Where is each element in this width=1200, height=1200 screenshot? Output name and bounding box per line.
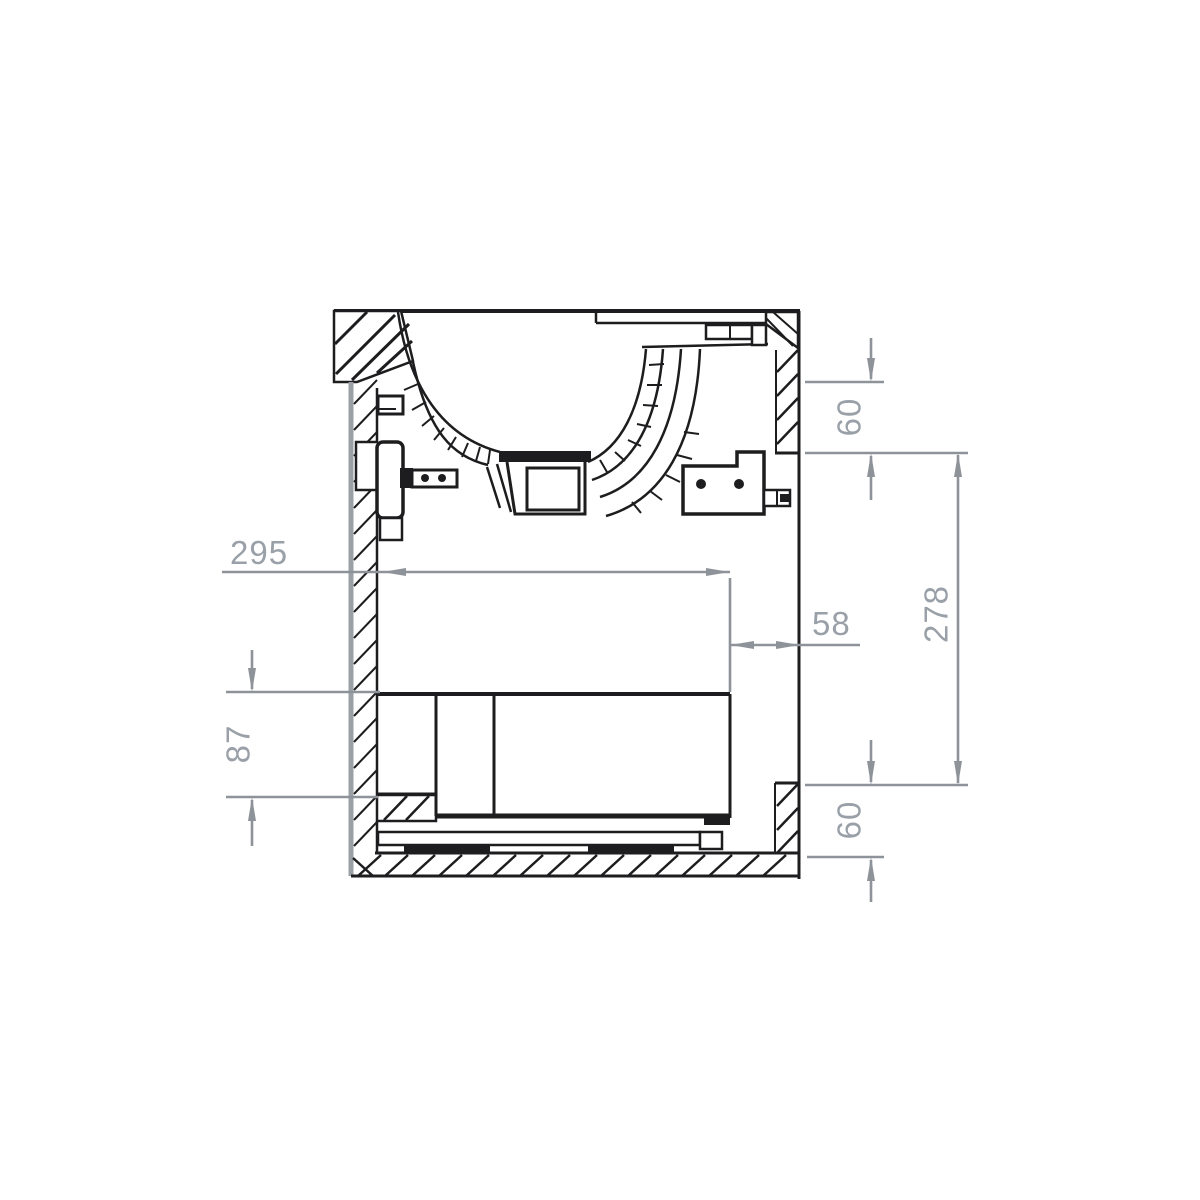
- right-wall-lower-hatch: [777, 784, 798, 853]
- dim-58-arrow-left: [730, 641, 754, 649]
- right-wall-upper-hatch: [777, 350, 798, 444]
- left-bracket-arm: [412, 470, 457, 487]
- overflow-curve-b: [592, 349, 663, 480]
- dim-top-spacing-label: 60: [831, 398, 868, 437]
- dim-60-top-arrow-upper: [867, 358, 875, 382]
- left-bracket-foot: [380, 518, 402, 540]
- bottom-panel-hatch: [358, 855, 786, 876]
- wall-step-cutout: [356, 442, 377, 490]
- bowl-inner-curve: [398, 312, 500, 452]
- dim-60-bottom-arrow-lower: [867, 857, 875, 881]
- runner-foot-left: [404, 846, 490, 852]
- dim-295-arrow-right: [706, 568, 730, 576]
- ledge-clip-tall: [752, 325, 766, 345]
- basin-rim-section: [334, 311, 413, 382]
- dim-295-arrow-left: [382, 568, 406, 576]
- vanity-unit-cross-section-drawing: 295 58 87 60 278 60: [0, 0, 1200, 1200]
- drawer-runner-rail: [378, 832, 700, 845]
- left-bracket-hole-1: [421, 474, 429, 482]
- bottom-left-corner: [353, 858, 373, 876]
- dim-278-arrow-top: [954, 453, 962, 477]
- dim-basin-width-label: 295: [230, 534, 288, 571]
- dim-drawer-front-height-label: 87: [220, 725, 257, 764]
- drawer-support-hatch: [384, 796, 429, 820]
- dim-interior-height-label: 278: [918, 585, 955, 643]
- dim-87-arrow-bottom: [248, 797, 256, 821]
- technical-drawing-page: 295 58 87 60 278 60: [0, 0, 1200, 1200]
- right-bracket-hole-1: [696, 479, 706, 489]
- dim-58-arrow-right: [776, 641, 800, 649]
- right-bracket-clip-tab: [780, 494, 790, 502]
- right-bracket-plate: [683, 452, 764, 514]
- overflow-inner-ticks: [600, 364, 664, 472]
- dimension-labels: 295 58 87 60 278 60: [220, 398, 955, 840]
- left-bracket-plate: [377, 442, 403, 518]
- drain-flange: [499, 451, 591, 462]
- dim-back-offset-label: 58: [812, 605, 851, 642]
- overflow-curve-c: [600, 349, 681, 497]
- drain-cup-inner: [527, 468, 579, 510]
- drawer-runner-step: [700, 832, 722, 849]
- dim-60-bottom-arrow-upper: [867, 761, 875, 785]
- dim-278-arrow-bottom: [954, 761, 962, 785]
- dim-60-top-arrow-lower: [867, 453, 875, 477]
- drawer-box: [378, 694, 730, 852]
- right-bracket-hole-2: [734, 479, 744, 489]
- drawer-bottom-notch: [704, 818, 730, 825]
- rim-clamp-block: [378, 396, 403, 414]
- left-bracket-hole-2: [438, 474, 446, 482]
- bowl-shell-curve: [413, 362, 488, 465]
- runner-foot-right: [588, 846, 674, 852]
- dim-bottom-spacing-label: 60: [831, 801, 868, 840]
- dim-87-arrow-top: [248, 668, 256, 692]
